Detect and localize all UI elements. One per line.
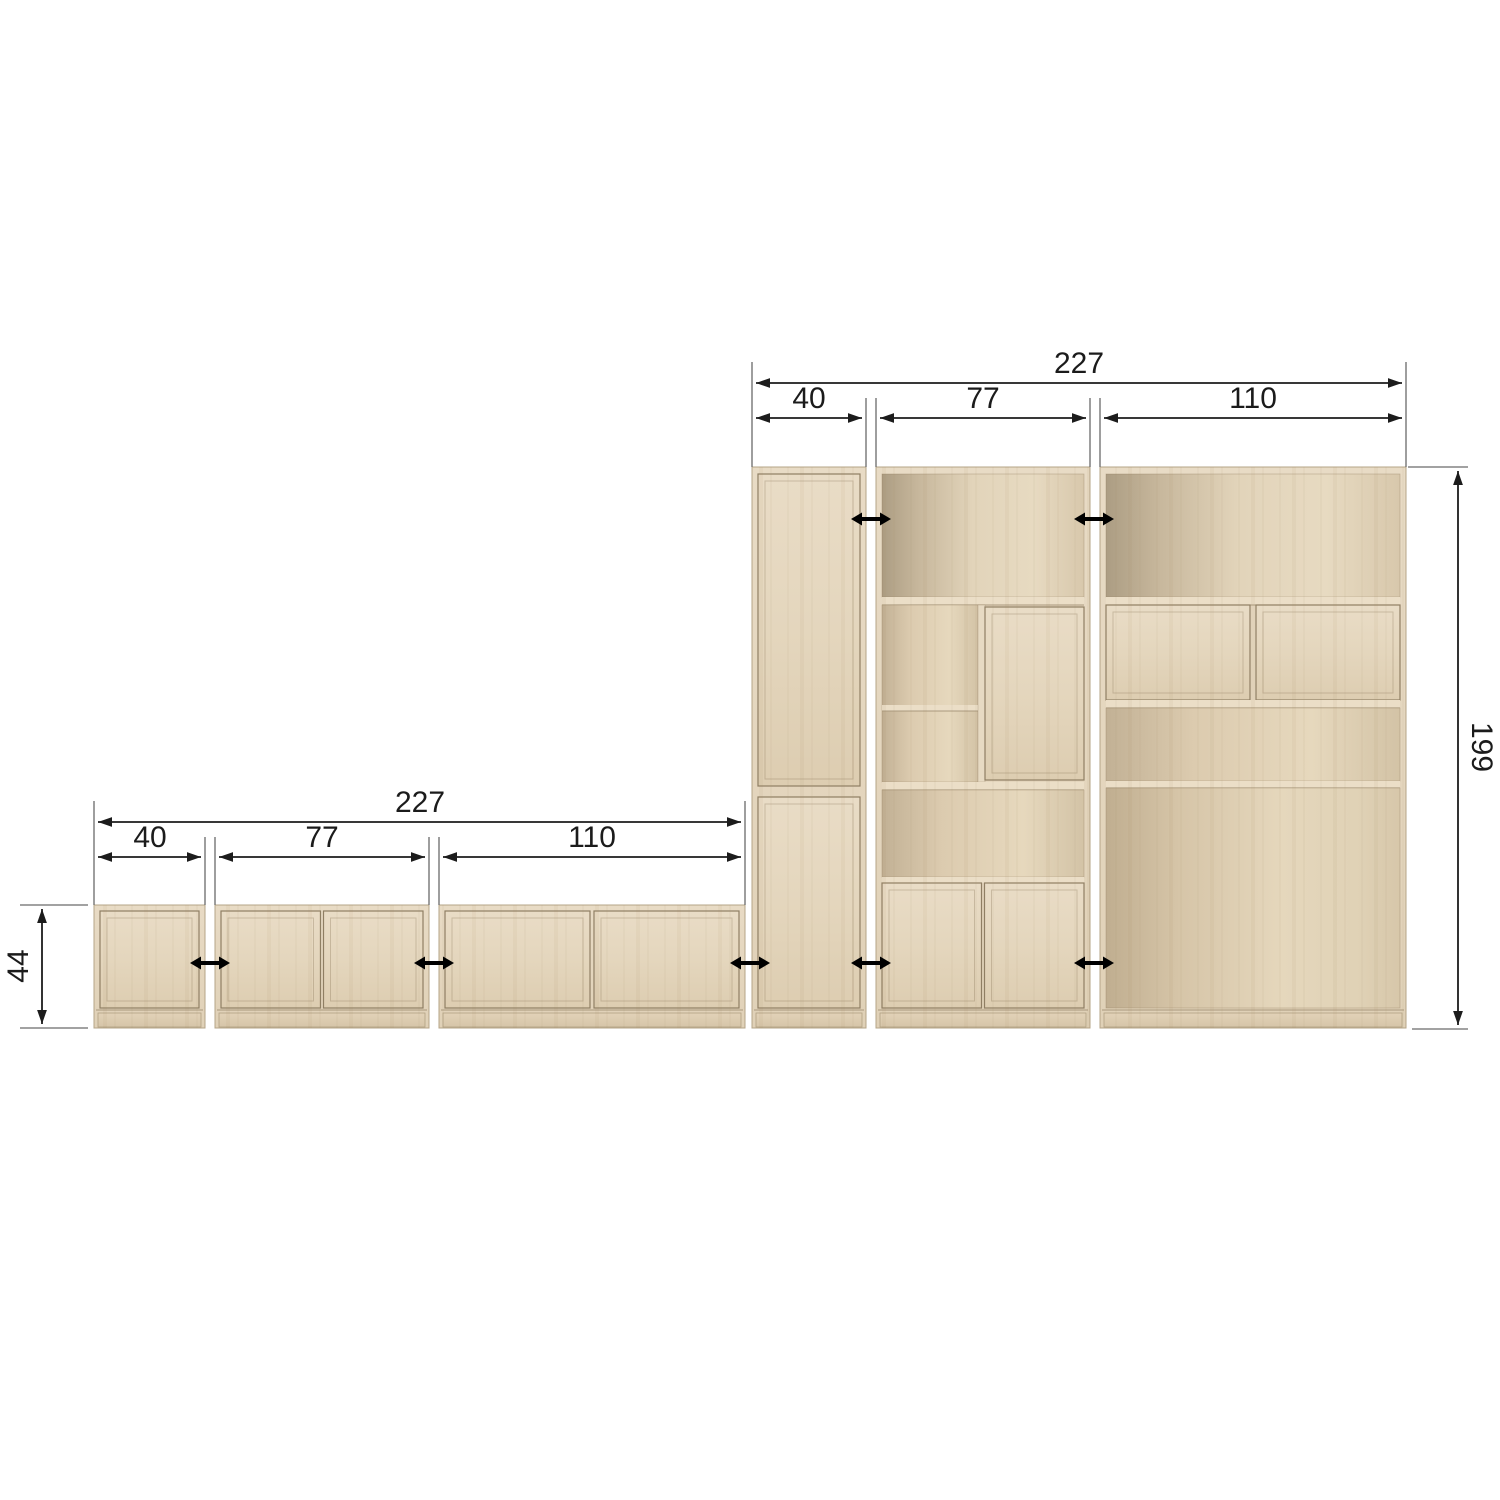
dimension-label-wall-total: 227 xyxy=(1054,347,1104,380)
sideboard-module-110 xyxy=(439,905,745,1028)
diagram-canvas: 227 40 77 110 199 227 40 77 110 44 xyxy=(0,0,1500,1500)
dimension-label-side-77: 77 xyxy=(305,821,338,854)
wood-grain-overlay xyxy=(439,905,745,1028)
dimension-label-wall-height: 199 xyxy=(1465,722,1498,772)
sideboard-row xyxy=(94,905,745,1028)
wall-module-110 xyxy=(1100,467,1406,1028)
dimension-label-side-40: 40 xyxy=(133,821,166,854)
furniture-dimension-diagram: 227 40 77 110 199 227 40 77 110 44 xyxy=(0,0,1500,1500)
sideboard-module-77 xyxy=(215,905,429,1028)
dimension-label-side-height: 44 xyxy=(2,949,35,982)
sideboard-module-40 xyxy=(94,905,205,1028)
wood-grain-overlay xyxy=(752,467,866,1028)
dimension-label-side-total: 227 xyxy=(395,786,445,819)
dimension-label-wall-77: 77 xyxy=(966,382,999,415)
dimension-label-wall-40: 40 xyxy=(792,382,825,415)
wood-grain-overlay xyxy=(1100,467,1406,1028)
wall-module-40 xyxy=(752,467,866,1028)
wood-grain-overlay xyxy=(94,905,205,1028)
dimension-label-wall-110: 110 xyxy=(1229,382,1277,415)
dimension-label-side-110: 110 xyxy=(568,821,616,854)
wood-grain-overlay xyxy=(215,905,429,1028)
wood-grain-overlay xyxy=(876,467,1090,1028)
wall-unit xyxy=(752,467,1406,1028)
wall-module-77 xyxy=(876,467,1090,1028)
